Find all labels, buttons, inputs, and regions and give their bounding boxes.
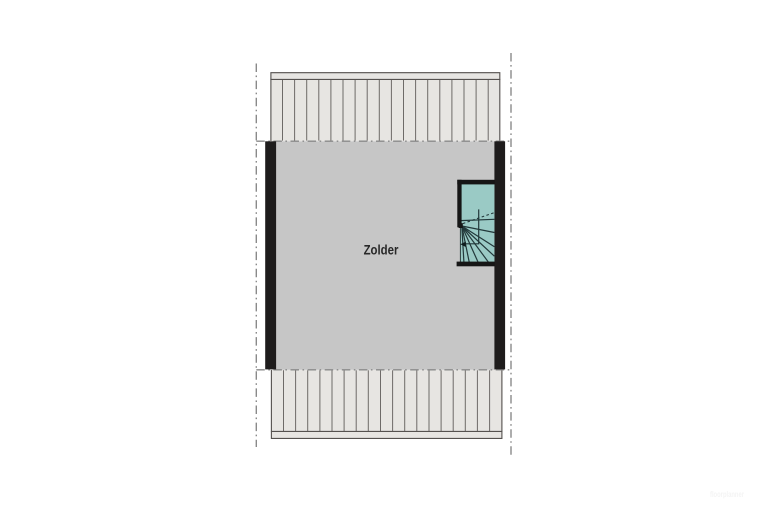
svg-text:floorplanner: floorplanner <box>710 489 744 499</box>
svg-text:Zolder: Zolder <box>364 242 399 258</box>
